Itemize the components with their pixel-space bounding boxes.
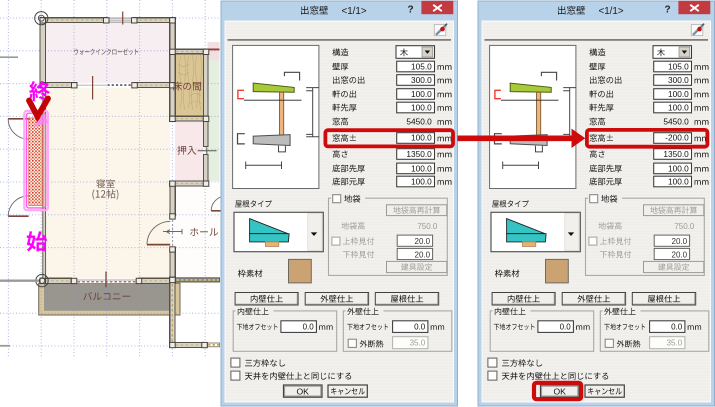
svg-text:100.0: 100.0 [411, 103, 432, 113]
svg-text:100.0: 100.0 [668, 164, 689, 174]
svg-text:0.0: 0.0 [303, 323, 315, 332]
svg-text:100.0: 100.0 [411, 164, 432, 174]
svg-text:1350.0: 1350.0 [406, 149, 432, 159]
svg-text:750.0: 750.0 [674, 222, 695, 231]
svg-text:100.0: 100.0 [411, 133, 432, 143]
svg-text:<1/1>: <1/1> [342, 6, 367, 17]
svg-text:5450.0: 5450.0 [406, 117, 432, 127]
svg-text:?: ? [664, 5, 670, 16]
svg-text:5450.0: 5450.0 [663, 117, 689, 127]
svg-text:105.0: 105.0 [668, 62, 689, 72]
svg-text:OK: OK [296, 386, 309, 396]
svg-text:0.0: 0.0 [414, 323, 426, 332]
svg-text:1350.0: 1350.0 [663, 149, 689, 159]
svg-text:?: ? [407, 5, 413, 16]
svg-text:300.0: 300.0 [411, 75, 432, 85]
svg-text:20.0: 20.0 [672, 237, 688, 246]
svg-text:0.0: 0.0 [560, 323, 572, 332]
svg-text:35.0: 35.0 [410, 339, 426, 348]
svg-text:20.0: 20.0 [415, 250, 431, 259]
svg-text:OK: OK [553, 386, 566, 396]
svg-text:100.0: 100.0 [668, 89, 689, 99]
svg-text:300.0: 300.0 [668, 75, 689, 85]
svg-text:<1/1>: <1/1> [599, 6, 624, 17]
svg-text:20.0: 20.0 [672, 250, 688, 259]
svg-text:100.0: 100.0 [411, 89, 432, 99]
svg-text:100.0: 100.0 [668, 177, 689, 187]
svg-text:100.0: 100.0 [411, 177, 432, 187]
svg-text:0.0: 0.0 [671, 323, 683, 332]
svg-text:20.0: 20.0 [415, 237, 431, 246]
svg-text:100.0: 100.0 [668, 103, 689, 113]
svg-text:750.0: 750.0 [417, 222, 438, 231]
svg-text:35.0: 35.0 [667, 339, 683, 348]
svg-text:105.0: 105.0 [411, 62, 432, 72]
svg-text:-200.0: -200.0 [665, 133, 689, 143]
